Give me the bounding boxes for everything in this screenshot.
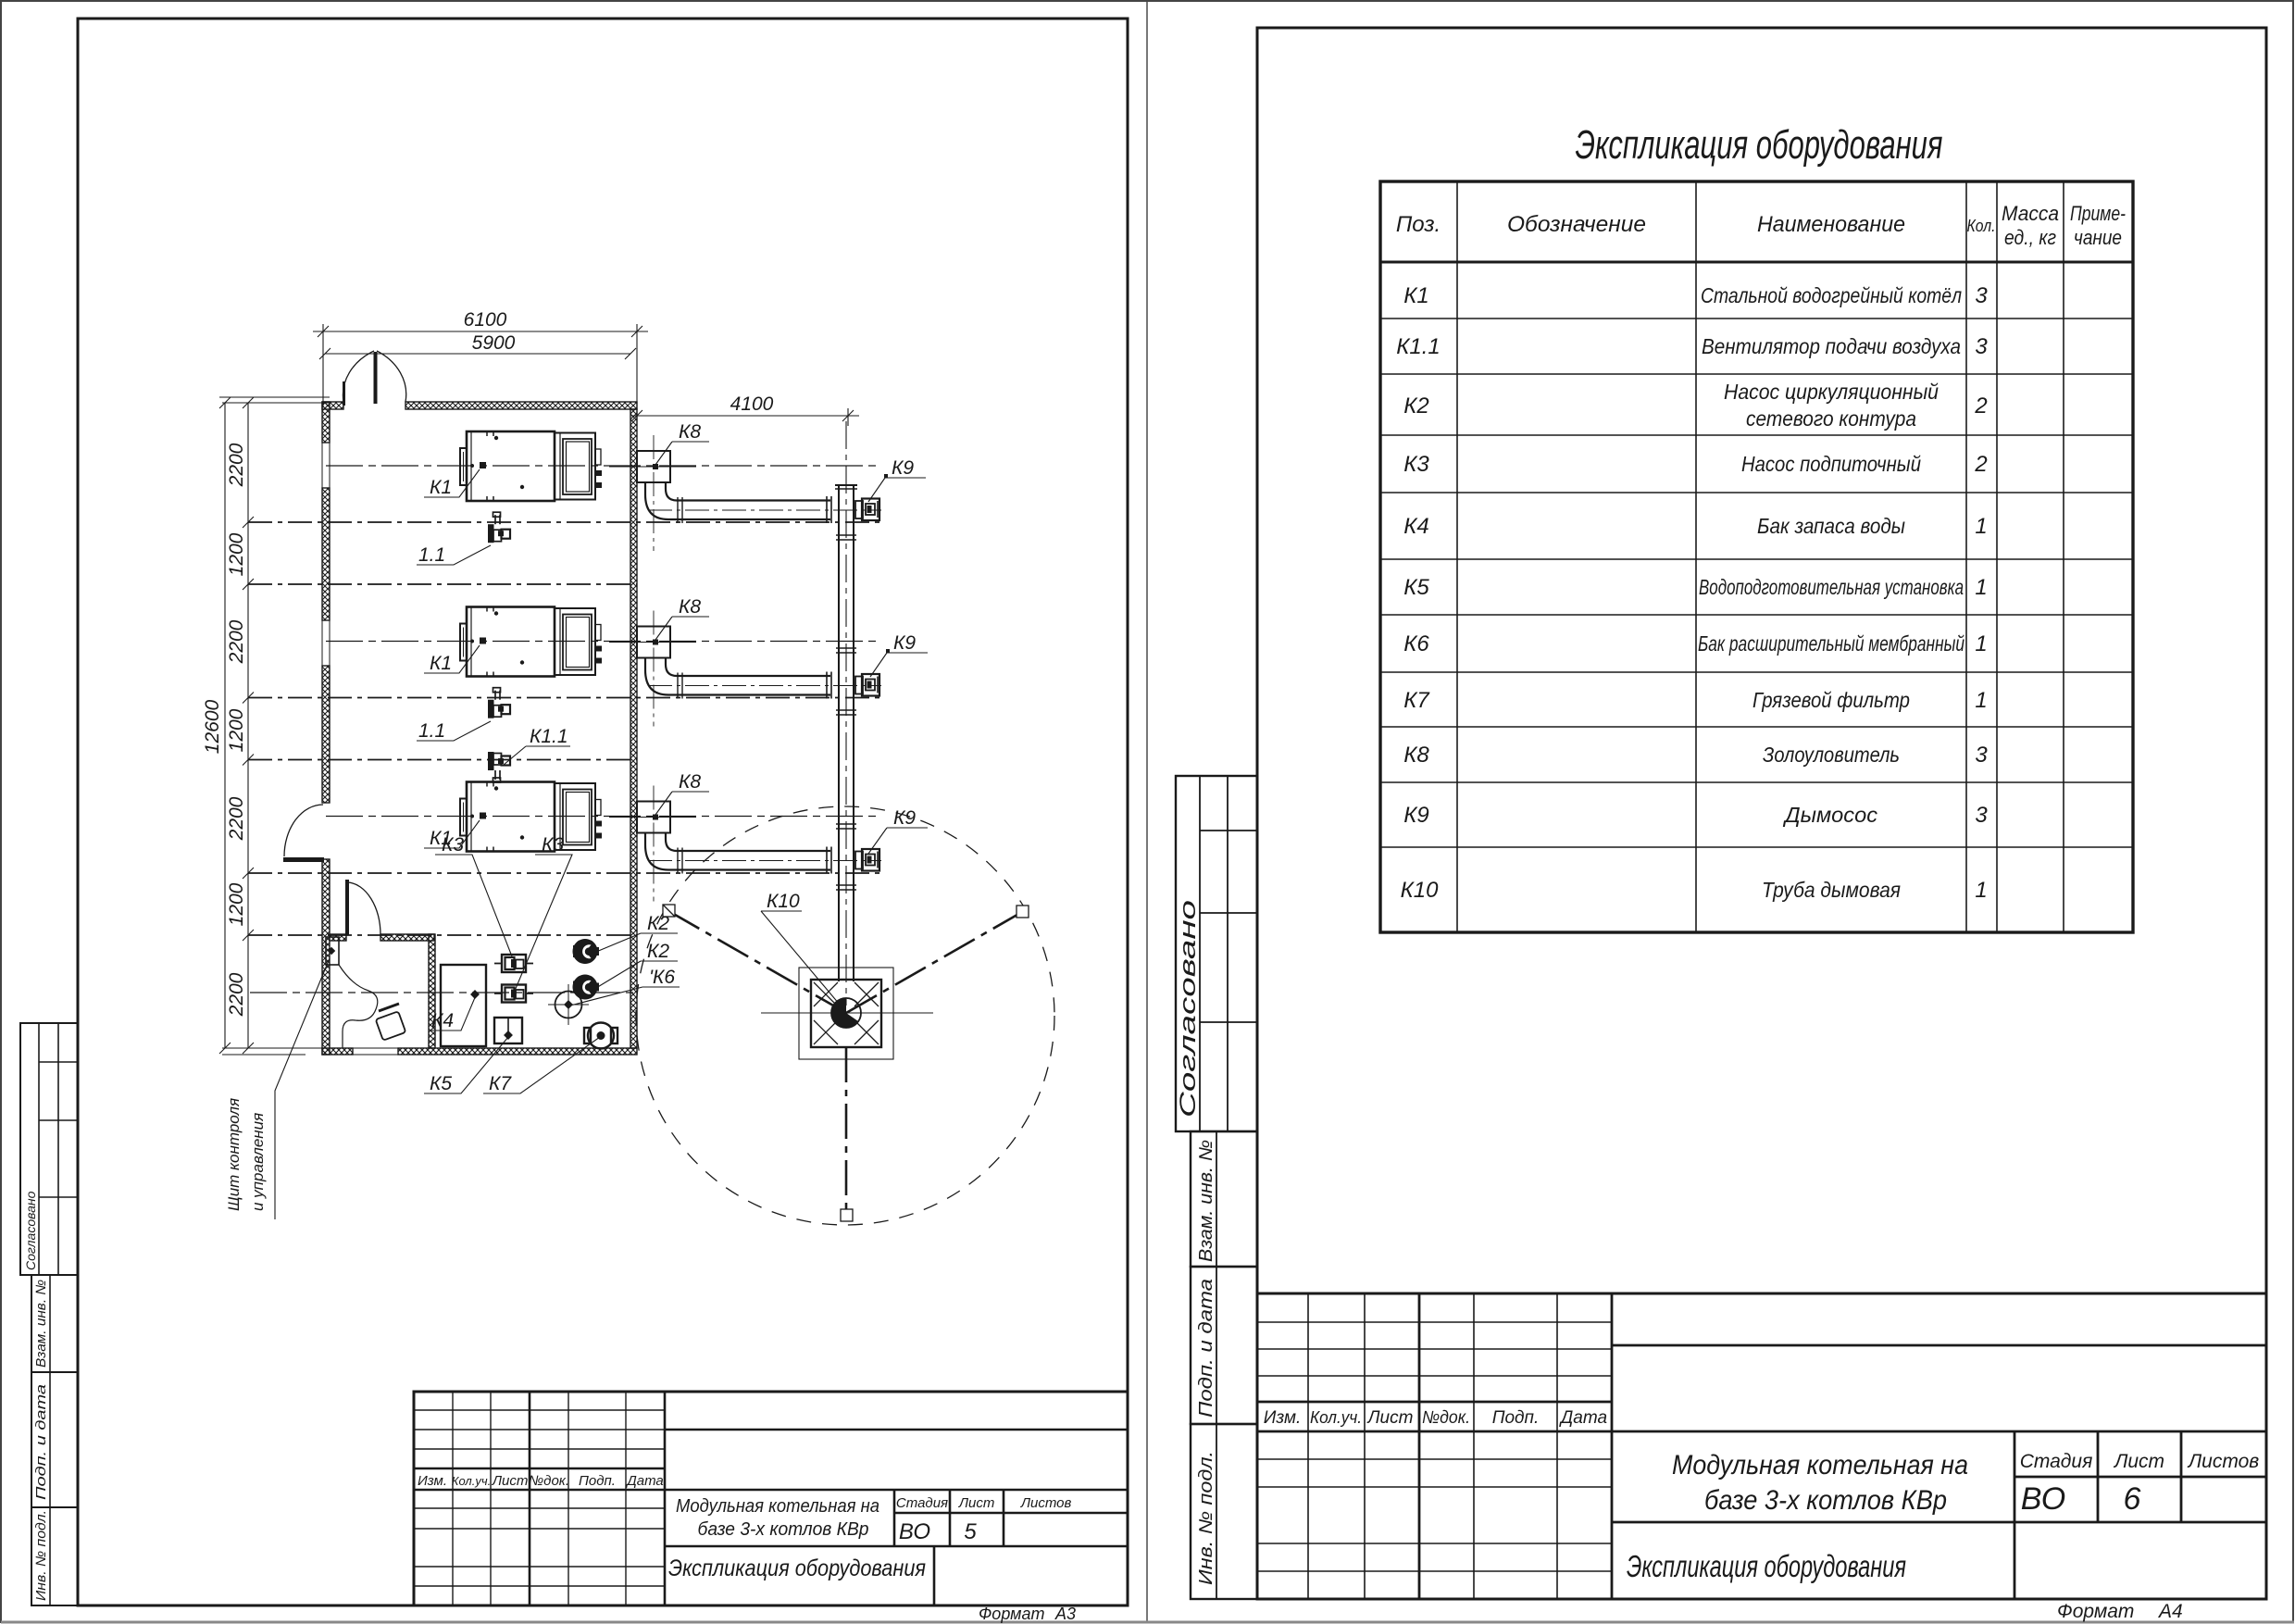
svg-text:К7: К7 <box>489 1073 512 1094</box>
svg-text:Водоподготовительная установка: Водоподготовительная установка <box>1699 575 1964 599</box>
svg-text:К6: К6 <box>1403 631 1429 656</box>
svg-text:Кол.уч.: Кол.уч. <box>452 1474 491 1488</box>
svg-text:К1.1: К1.1 <box>1396 334 1441 359</box>
svg-text:Формат: Формат <box>2057 1601 2134 1622</box>
svg-text:4100: 4100 <box>730 394 774 415</box>
svg-text:К9: К9 <box>893 632 916 654</box>
svg-text:К2: К2 <box>647 913 669 934</box>
svg-text:Согласовано: Согласовано <box>23 1191 38 1270</box>
svg-text:2200: 2200 <box>226 796 247 841</box>
svg-text:А4: А4 <box>2157 1601 2183 1622</box>
svg-text:Экспликация оборудования: Экспликация оборудования <box>668 1555 926 1581</box>
svg-text:Поз.: Поз. <box>1396 212 1441 237</box>
svg-text:Изм.: Изм. <box>1264 1408 1302 1428</box>
svg-text:К4: К4 <box>1403 514 1429 539</box>
svg-text:2200: 2200 <box>226 972 247 1017</box>
svg-text:К5: К5 <box>430 1073 452 1094</box>
svg-text:1: 1 <box>1975 575 1987 600</box>
svg-text:К8: К8 <box>679 596 701 618</box>
svg-text:1200: 1200 <box>226 882 247 926</box>
svg-text:1.1: 1.1 <box>418 544 445 566</box>
svg-text:К1: К1 <box>1403 283 1429 308</box>
svg-text:и управления: и управления <box>249 1113 267 1211</box>
svg-text:3: 3 <box>1975 334 1988 359</box>
svg-text:К8: К8 <box>679 421 701 443</box>
svg-text:сетевого контура: сетевого контура <box>1746 406 1916 431</box>
svg-text:Взам. инв. №: Взам. инв. № <box>33 1280 49 1368</box>
svg-text:базе 3-х котлов КВр: базе 3-х котлов КВр <box>698 1519 869 1540</box>
svg-text:1.1: 1.1 <box>418 720 445 742</box>
svg-text:Согласовано: Согласовано <box>1176 900 1201 1118</box>
svg-text:К10: К10 <box>1401 878 1439 903</box>
svg-text:Подп. и дата: Подп. и дата <box>33 1384 49 1500</box>
svg-text:Приме-: Приме- <box>2070 202 2126 225</box>
svg-text:Дымосос: Дымосос <box>1782 803 1878 827</box>
svg-text:К2: К2 <box>1403 394 1429 418</box>
svg-text:ВО: ВО <box>899 1519 930 1544</box>
svg-text:Стадия: Стадия <box>2020 1451 2093 1472</box>
svg-text:Бак расширительный мембранный: Бак расширительный мембранный <box>1698 631 1964 656</box>
svg-text:Лист: Лист <box>958 1495 995 1511</box>
svg-text:Стальной водогрейный котёл: Стальной водогрейный котёл <box>1701 283 1962 307</box>
svg-text:Лист: Лист <box>492 1473 529 1489</box>
svg-text:К9: К9 <box>892 457 914 479</box>
svg-text:Формат: Формат <box>979 1605 1044 1623</box>
svg-text:Экспликация оборудования: Экспликация оборудования <box>1627 1549 1906 1583</box>
svg-text:1: 1 <box>1975 631 1987 656</box>
svg-text:5: 5 <box>964 1519 977 1544</box>
svg-text:К3: К3 <box>1403 452 1429 477</box>
svg-text:3: 3 <box>1975 283 1988 308</box>
svg-text:чание: чание <box>2074 226 2122 249</box>
svg-text:'К6: 'К6 <box>649 967 675 988</box>
svg-text:Подп.: Подп. <box>1492 1408 1540 1428</box>
svg-text:К4: К4 <box>431 1010 454 1031</box>
svg-text:К9: К9 <box>1403 803 1429 828</box>
svg-text:К7: К7 <box>1403 688 1430 713</box>
svg-text:ВО: ВО <box>2021 1481 2065 1517</box>
svg-text:Наименование: Наименование <box>1757 212 1905 237</box>
svg-text:Бак запаса воды: Бак запаса воды <box>1757 514 1905 538</box>
svg-text:Подп. и дата: Подп. и дата <box>1196 1279 1216 1418</box>
svg-text:Инв. № подл.: Инв. № подл. <box>1196 1451 1216 1585</box>
svg-text:12600: 12600 <box>202 699 223 754</box>
svg-text:Стадия: Стадия <box>896 1495 948 1511</box>
svg-text:2: 2 <box>1974 394 1987 418</box>
svg-text:Насос подпиточный: Насос подпиточный <box>1741 452 1921 476</box>
svg-text:Дата: Дата <box>625 1473 664 1489</box>
svg-text:Экспликация оборудования: Экспликация оборудования <box>1576 122 1943 168</box>
svg-text:Изм.: Изм. <box>418 1473 447 1489</box>
svg-text:Грязевой фильтр: Грязевой фильтр <box>1752 688 1910 712</box>
svg-text:Труба дымовая: Труба дымовая <box>1762 878 1901 902</box>
svg-text:Взам. инв. №: Взам. инв. № <box>1196 1140 1216 1262</box>
svg-text:К5: К5 <box>1403 575 1429 600</box>
svg-text:К10: К10 <box>767 891 800 912</box>
svg-text:Обозначение: Обозначение <box>1507 212 1646 237</box>
svg-text:ед., кг: ед., кг <box>2004 226 2056 249</box>
svg-text:3: 3 <box>1975 743 1988 768</box>
svg-text:№док.: №док. <box>529 1473 569 1489</box>
svg-text:Листов: Листов <box>1020 1495 1072 1511</box>
svg-text:Модульная котельная на: Модульная котельная на <box>1672 1450 1968 1480</box>
svg-text:Дата: Дата <box>1559 1408 1607 1428</box>
svg-text:Золоуловитель: Золоуловитель <box>1763 743 1900 767</box>
svg-text:1: 1 <box>1975 688 1987 713</box>
svg-text:К1: К1 <box>430 653 452 674</box>
svg-text:К9: К9 <box>893 807 916 829</box>
svg-text:Подп.: Подп. <box>579 1473 616 1489</box>
svg-text:Насос циркуляционный: Насос циркуляционный <box>1724 380 1939 404</box>
svg-text:А3: А3 <box>1054 1605 1076 1623</box>
svg-text:К2: К2 <box>647 941 669 962</box>
svg-text:Лист: Лист <box>1366 1408 1414 1428</box>
svg-text:К8: К8 <box>679 771 701 793</box>
svg-text:Кол.: Кол. <box>1967 217 1996 235</box>
svg-text:5900: 5900 <box>472 332 516 354</box>
svg-text:базе 3-х котлов КВр: базе 3-х котлов КВр <box>1704 1485 1947 1516</box>
svg-text:К3: К3 <box>542 834 564 856</box>
svg-text:№док.: №док. <box>1422 1408 1470 1428</box>
svg-text:2200: 2200 <box>226 443 247 487</box>
svg-text:К1: К1 <box>430 477 452 498</box>
svg-text:Вентилятор подачи воздуха: Вентилятор подачи воздуха <box>1702 334 1961 358</box>
svg-text:Масса: Масса <box>2002 202 2059 225</box>
svg-text:Лист: Лист <box>2113 1451 2164 1472</box>
svg-text:1: 1 <box>1975 514 1987 539</box>
svg-text:2: 2 <box>1974 452 1987 477</box>
svg-text:К1.1: К1.1 <box>530 726 568 747</box>
svg-text:2200: 2200 <box>226 619 247 664</box>
svg-text:6100: 6100 <box>464 309 507 331</box>
svg-text:1200: 1200 <box>226 708 247 752</box>
svg-text:К3: К3 <box>442 834 464 856</box>
svg-text:3: 3 <box>1975 803 1988 828</box>
svg-text:6: 6 <box>2124 1481 2141 1517</box>
svg-text:Инв. № подл.: Инв. № подл. <box>33 1510 49 1601</box>
svg-text:Модульная котельная на: Модульная котельная на <box>676 1496 879 1517</box>
svg-text:1200: 1200 <box>226 532 247 576</box>
svg-text:Листов: Листов <box>2187 1451 2260 1472</box>
svg-text:К8: К8 <box>1403 743 1429 768</box>
svg-text:1: 1 <box>1975 878 1987 903</box>
svg-text:Кол.уч.: Кол.уч. <box>1310 1408 1362 1427</box>
svg-text:Щит контроля: Щит контроля <box>225 1098 243 1211</box>
